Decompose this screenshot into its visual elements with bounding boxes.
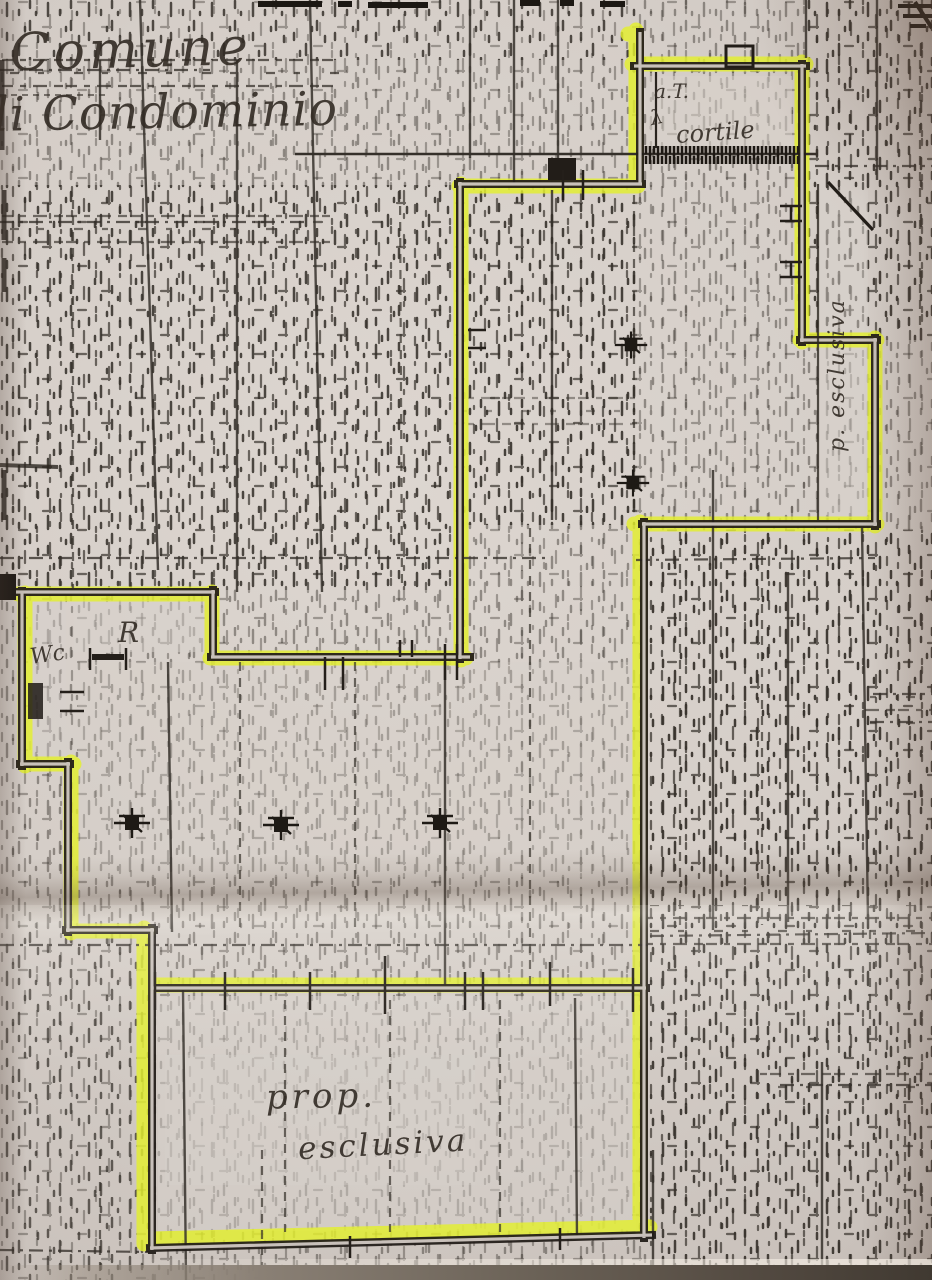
label-strip-vertical: p. esclusiva — [825, 298, 850, 452]
label-wc: Wc — [28, 640, 66, 670]
label-comune: Comune — [9, 17, 253, 83]
label-cortile: cortile — [675, 116, 755, 149]
plan-svg: Comune li Condominio a.T. λ cortile Wc R… — [0, 0, 932, 1280]
label-room-r: R — [117, 616, 139, 649]
label-condominio: li Condominio — [0, 82, 338, 143]
label-cortile-abbrev: a.T. — [654, 79, 689, 103]
floorplan-photo: Comune li Condominio a.T. λ cortile Wc R… — [0, 0, 932, 1280]
label-prop: prop. — [266, 1076, 378, 1118]
